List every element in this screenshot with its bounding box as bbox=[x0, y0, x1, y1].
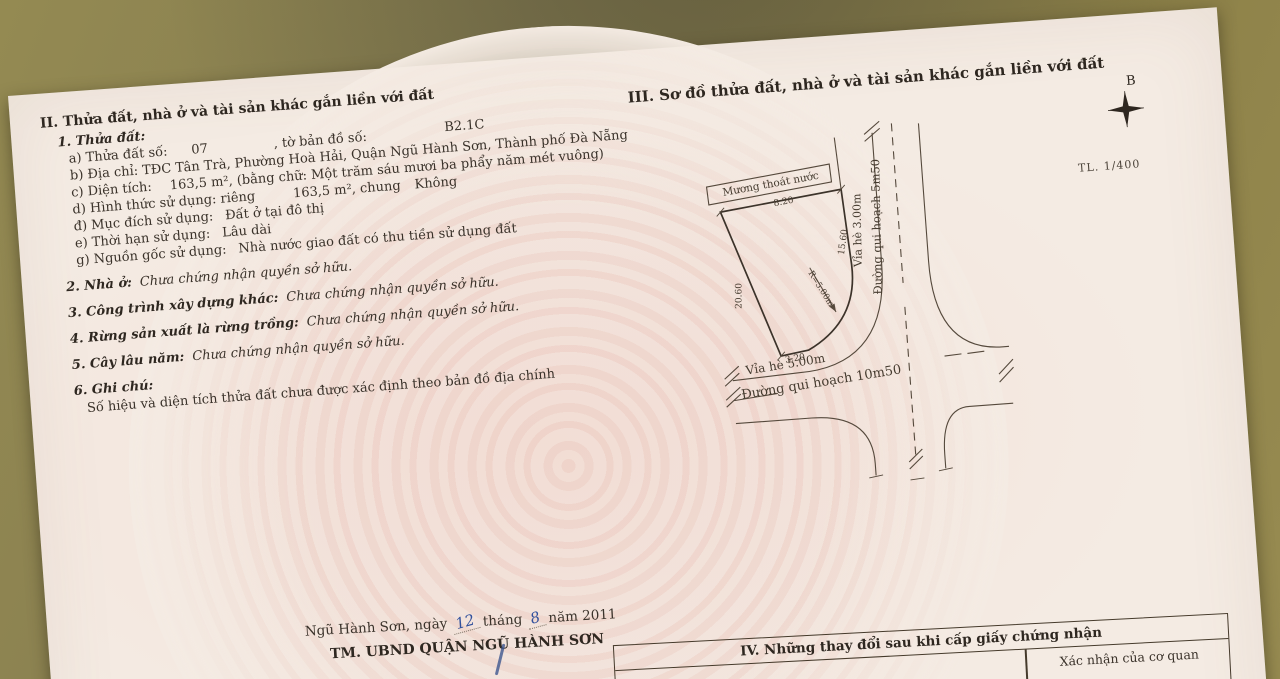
road-right-curb bbox=[918, 118, 1009, 352]
road-bottom-edge-east bbox=[941, 403, 1017, 468]
road-centerline-lower bbox=[905, 307, 916, 459]
section-2-parcel-info: II. Thửa đất, nhà ở và tài sản khác gắn … bbox=[40, 73, 651, 419]
compass-star-icon bbox=[1105, 88, 1148, 131]
boundary-extension-line bbox=[834, 137, 841, 189]
dim-top: 8.20 bbox=[773, 196, 795, 209]
compass-rose: B bbox=[1101, 73, 1149, 135]
dim-right: 15.60 bbox=[837, 228, 850, 255]
handwritten-month: 8 bbox=[524, 607, 546, 630]
road-centerline-upper bbox=[891, 123, 903, 283]
map-scale-note: TL. 1/400 bbox=[1078, 157, 1141, 175]
dimension-ticks bbox=[715, 185, 857, 364]
photo-background: II. Thửa đất, nhà ở và tài sản khác gắn … bbox=[0, 0, 1280, 679]
private-area-value: 163,5 m² bbox=[293, 182, 353, 201]
road-bottom-edge-west bbox=[736, 414, 876, 486]
sidewalk-vertical-label: Vỉa hè 3.00m bbox=[850, 193, 865, 268]
dim-left: 20.60 bbox=[734, 283, 744, 309]
table-column-divider bbox=[1025, 650, 1031, 679]
map-sheet-value: B2.1C bbox=[444, 117, 485, 135]
road-end-ticks bbox=[869, 468, 953, 483]
radius-label: R=5.00m bbox=[806, 269, 836, 309]
break-mark-west-upper bbox=[724, 366, 740, 386]
break-mark-west-lower bbox=[725, 387, 741, 407]
shared-area-value: Không bbox=[414, 174, 458, 192]
parcel-outline bbox=[719, 189, 858, 360]
site-diagram: Mương thoát nước 8.20 20.60 15.60 3.20 R… bbox=[684, 102, 1044, 545]
certificate-page: II. Thửa đất, nhà ở và tài sản khác gắn … bbox=[8, 7, 1271, 679]
confirmation-column-header: Xác nhận của cơ quan bbox=[1043, 646, 1216, 670]
parcel-number-value: 07 bbox=[191, 142, 209, 158]
break-mark-east bbox=[998, 359, 1015, 382]
road-vertical-label: Đường qui hoạch 5m50 bbox=[868, 159, 885, 295]
handwritten-day: 12 bbox=[449, 610, 480, 635]
road-centerline-dashes-east bbox=[944, 351, 984, 356]
drain-label: Mương thoát nước bbox=[722, 170, 820, 199]
